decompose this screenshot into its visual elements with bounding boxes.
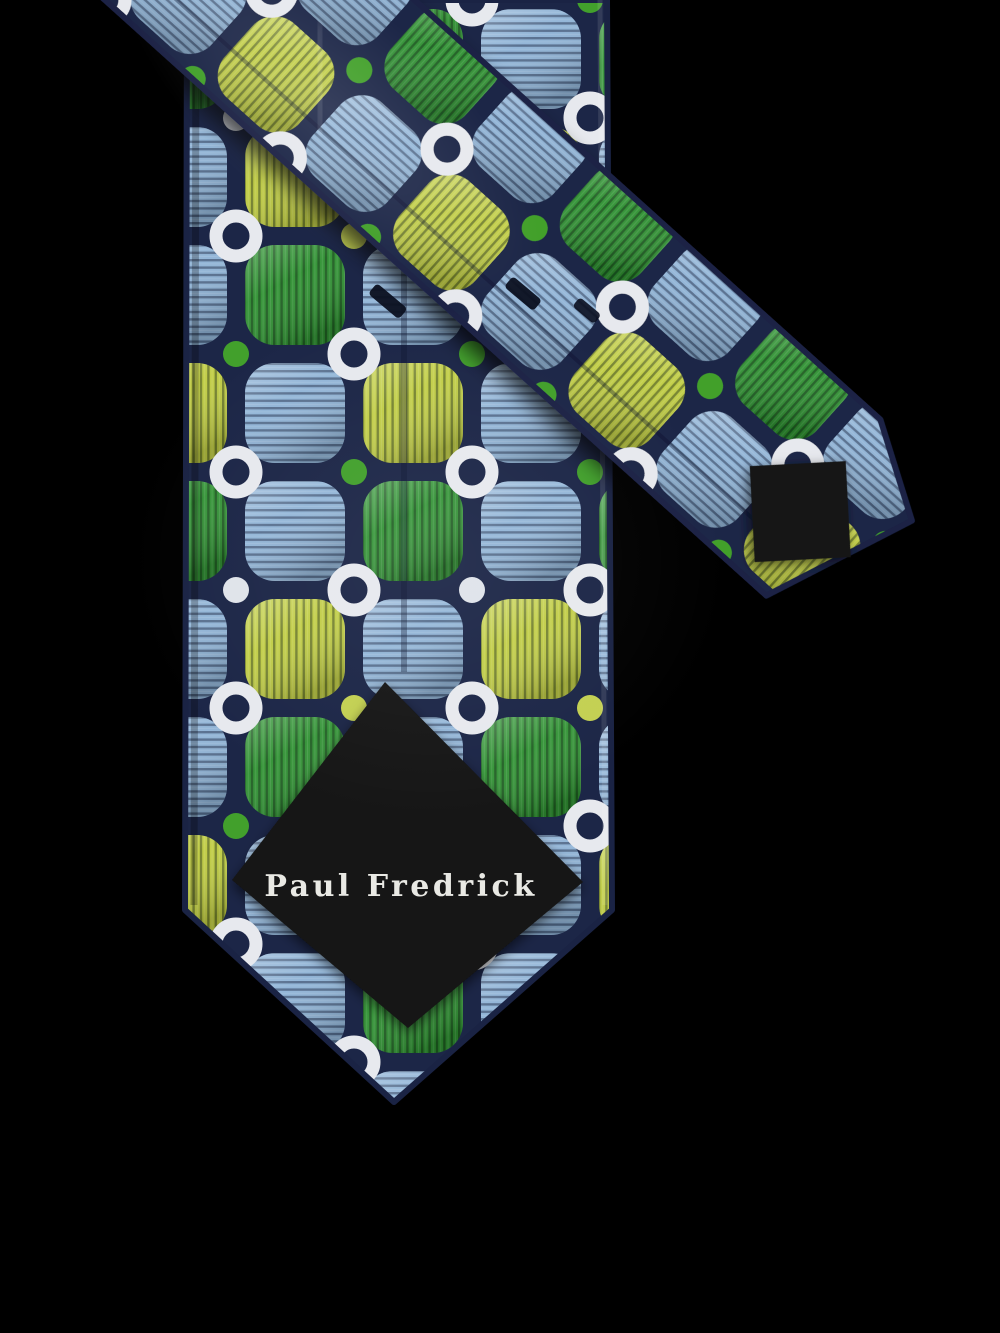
tie-photo-canvas: Paul Fredrick: [0, 0, 1000, 1333]
product-photo: Paul Fredrick: [0, 0, 1000, 1333]
vignette: [0, 0, 1000, 1333]
